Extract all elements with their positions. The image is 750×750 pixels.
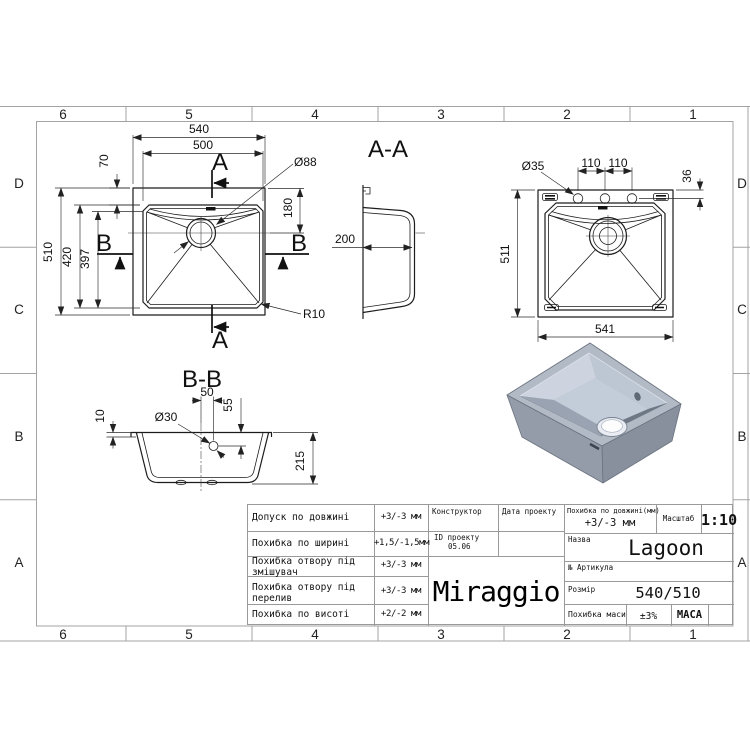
drawing-canvas: 540 500 70 Ø88 180 510 420 397 R10 A A B… [0, 0, 750, 750]
dim-511: 511 [498, 244, 512, 263]
bottom-view: Ø35 110 110 36 511 541 [498, 156, 704, 342]
product-name: Lagoon [598, 536, 734, 560]
dim-420: 420 [60, 247, 74, 267]
dim-35: Ø35 [522, 159, 545, 173]
marker-b-right: B [291, 230, 307, 257]
scale-label: Масштаб [656, 515, 701, 523]
tolerance-overflow-hole-label: Похибка отвору під перелив [252, 583, 371, 605]
brand-logo: Miraggio [428, 556, 564, 626]
section-bb-view: B-B 50 55 Ø30 10 215 [93, 366, 318, 493]
zone-row-c-right: C [732, 302, 750, 317]
zone-row-d-right: D [732, 176, 750, 191]
zone-col-6-bottom: 6 [53, 627, 73, 642]
dim-540: 540 [189, 122, 209, 136]
tolerance-length-value: +3/-3 мм [374, 513, 428, 523]
section-aa-title: A-A [368, 136, 408, 163]
zone-col-6-top: 6 [53, 107, 73, 122]
dim-541: 541 [595, 322, 615, 336]
marker-b-left: B [96, 230, 112, 257]
title-block: Допуск по довжині +3/-3 мм Похибка по ши… [247, 504, 733, 625]
marker-a-top: A [212, 149, 228, 176]
mass-label: МАСА [671, 609, 708, 621]
mass-tolerance-label: Похибка маси [568, 611, 626, 620]
tolerance-height-value: +2/-2 мм [374, 610, 428, 620]
name-label: Назва [568, 536, 591, 544]
zone-row-a-right: A [732, 555, 750, 570]
dim-180: 180 [281, 198, 295, 218]
zone-col-2-top: 2 [557, 107, 577, 122]
zone-col-5-top: 5 [179, 107, 199, 122]
tolerance-mixer-hole-label: Похибка отвору під змішувач [252, 557, 371, 579]
dim-200: 200 [335, 232, 355, 246]
drawing-sheet: 540 500 70 Ø88 180 510 420 397 R10 A A B… [0, 0, 750, 750]
dim-215: 215 [293, 451, 307, 471]
zone-col-1-top: 1 [683, 107, 703, 122]
tolerance-overflow-hole-value: +3/-3 мм [374, 587, 428, 597]
tolerance-mixer-hole-value: +3/-3 мм [374, 561, 428, 571]
scale-value: 1:10 [701, 511, 734, 529]
project-id-label: ID проекту [434, 534, 479, 542]
dim-50: 50 [200, 385, 214, 399]
size-label: Розмір [568, 586, 595, 594]
zone-row-b-right: B [732, 429, 750, 444]
dim-510: 510 [41, 242, 55, 262]
zone-col-4-top: 4 [305, 107, 325, 122]
zone-col-1-bottom: 1 [683, 627, 703, 642]
dim-110b: 110 [608, 156, 627, 170]
length-tolerance-label: Похибка по довжині(мм) [567, 508, 660, 516]
marker-a-bottom: A [212, 327, 228, 354]
project-id-value: 05.06 [448, 543, 471, 551]
dim-110a: 110 [581, 156, 600, 170]
length-tolerance-value: +3/-3 мм [564, 517, 656, 529]
zone-col-4-bottom: 4 [305, 627, 325, 642]
project-date-label: Дата проекту [502, 508, 556, 516]
zone-col-2-bottom: 2 [557, 627, 577, 642]
zone-row-a-left: A [9, 555, 29, 570]
dim-500: 500 [193, 138, 213, 152]
article-label: № Артикула [568, 564, 613, 572]
dim-88: Ø88 [294, 155, 317, 169]
zone-col-3-bottom: 3 [431, 627, 451, 642]
size-value: 540/510 [608, 584, 728, 602]
section-aa-view: A-A 200 [332, 136, 425, 319]
zone-col-5-bottom: 5 [179, 627, 199, 642]
dim-10: 10 [93, 409, 107, 423]
iso-view [507, 343, 681, 483]
section-b-marks [97, 254, 309, 268]
zone-row-c-left: C [9, 302, 29, 317]
plan-view: 540 500 70 Ø88 180 510 420 397 R10 A A B… [41, 122, 325, 354]
dim-36: 36 [680, 169, 694, 183]
tolerance-length-label: Допуск по довжині [252, 513, 371, 524]
tolerance-height-label: Похибка по висоті [252, 610, 371, 621]
zone-row-d-left: D [9, 176, 29, 191]
tolerance-width-label: Похибка по ширині [252, 539, 371, 550]
dim-30: Ø30 [155, 410, 178, 424]
zone-row-b-left: B [9, 429, 29, 444]
corner-clips [543, 194, 669, 311]
dim-55: 55 [221, 398, 235, 412]
zone-col-3-top: 3 [431, 107, 451, 122]
tolerance-width-value: +1,5/-1,5мм [374, 539, 428, 549]
constructor-label: Конструктор [432, 508, 482, 516]
mass-tolerance-value: ±3% [626, 611, 671, 622]
dim-397: 397 [78, 249, 92, 269]
dim-r10: R10 [303, 307, 325, 321]
dim-70: 70 [97, 154, 111, 168]
